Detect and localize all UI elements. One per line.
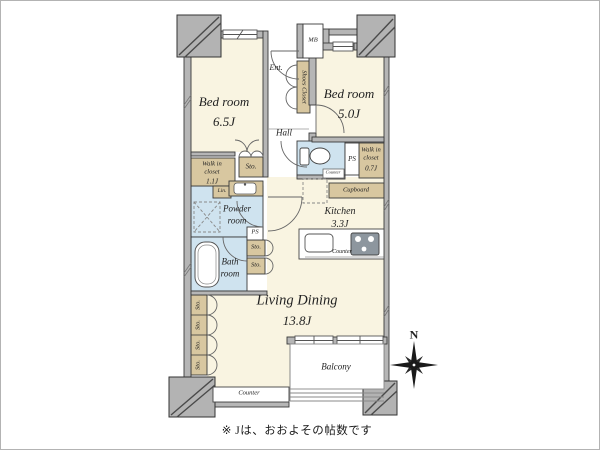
bedroom-b-size: 5.0J <box>338 107 360 121</box>
toilet-tank <box>300 148 309 165</box>
wall-mb-left <box>297 24 303 58</box>
bedroom-b-name: Bed room <box>324 87 374 101</box>
bottom-counter-label: Counter <box>238 391 259 398</box>
wall-left <box>184 53 191 381</box>
wic-a-line1: Walk in <box>202 162 221 169</box>
storage-bath-1-label: Sto. <box>251 245 261 252</box>
wall-bedroom-a-south <box>191 152 235 156</box>
living-dining-name: Living Dining <box>257 293 338 308</box>
kitchen-sink <box>305 234 333 252</box>
wic-a-size: 1.1J <box>206 178 218 185</box>
floorplan-canvas: Bed room 6.5J Bed room 5.0J Ent. MB Shoe… <box>0 0 600 450</box>
toilet-bowl <box>310 148 330 164</box>
wic-b-line2: closet <box>363 156 378 163</box>
living-dining-size: 13.8J <box>283 314 312 328</box>
pipe-space-left-label: PS <box>251 230 258 237</box>
bath-line2: room <box>221 269 240 278</box>
meter-box-label: MB <box>308 38 317 45</box>
bifold-shoes-1 <box>286 65 297 87</box>
kitchen-stove <box>351 233 379 255</box>
wall-hall-west <box>263 31 268 177</box>
kitchen-counter-label: Counter <box>332 249 352 255</box>
cupboard-label: Cupboard <box>343 188 369 195</box>
balcony-label: Balcony <box>321 362 351 371</box>
bifold-shoes-2 <box>286 87 297 109</box>
footnote: ※ Jは、おおよその帖数です <box>222 425 373 437</box>
storage-top-label: Sto. <box>246 163 257 170</box>
wic-b-size: 0.7J <box>365 165 377 172</box>
entrance-label: Ent. <box>269 64 282 72</box>
storage-col-2-label: Sto. <box>196 320 203 330</box>
floorplan-drawing <box>1 1 599 449</box>
linen-label: Lin. <box>218 189 227 195</box>
vanity-faucet <box>244 183 246 185</box>
storage-col-3-label: Sto. <box>196 340 203 350</box>
bedroom-a-size: 6.5J <box>213 115 235 129</box>
toilet-counter-label: Counter <box>326 171 341 176</box>
storage-col-1-label: Sto. <box>196 300 203 310</box>
bedroom-a-name: Bed room <box>199 95 249 109</box>
shoes-closet-label: Shoes Closet <box>300 70 307 103</box>
powder-line1: Powder <box>223 204 251 213</box>
wic-b-line1: Walk in <box>361 148 380 155</box>
wall-hall-bedroom-b <box>309 57 316 105</box>
kitchen-size: 3.3J <box>332 220 349 231</box>
wall-bedroom-b-south <box>312 137 384 142</box>
pipe-space-right-label: PS <box>348 155 356 163</box>
compass-north-label: N <box>410 329 419 342</box>
bath-line1: Bath <box>222 257 239 266</box>
wall-top-step <box>329 29 357 35</box>
wall-bottom-counter <box>213 402 289 407</box>
wic-a-line2: closet <box>204 170 219 177</box>
storage-col-4-label: Sto. <box>196 360 203 370</box>
bathtub <box>195 242 219 287</box>
kitchen-name: Kitchen <box>324 207 355 218</box>
storage-bath-2-label: Sto. <box>251 263 261 270</box>
hall-label: Hall <box>276 128 292 137</box>
wall-right <box>384 57 389 381</box>
powder-line2: room <box>228 216 247 225</box>
